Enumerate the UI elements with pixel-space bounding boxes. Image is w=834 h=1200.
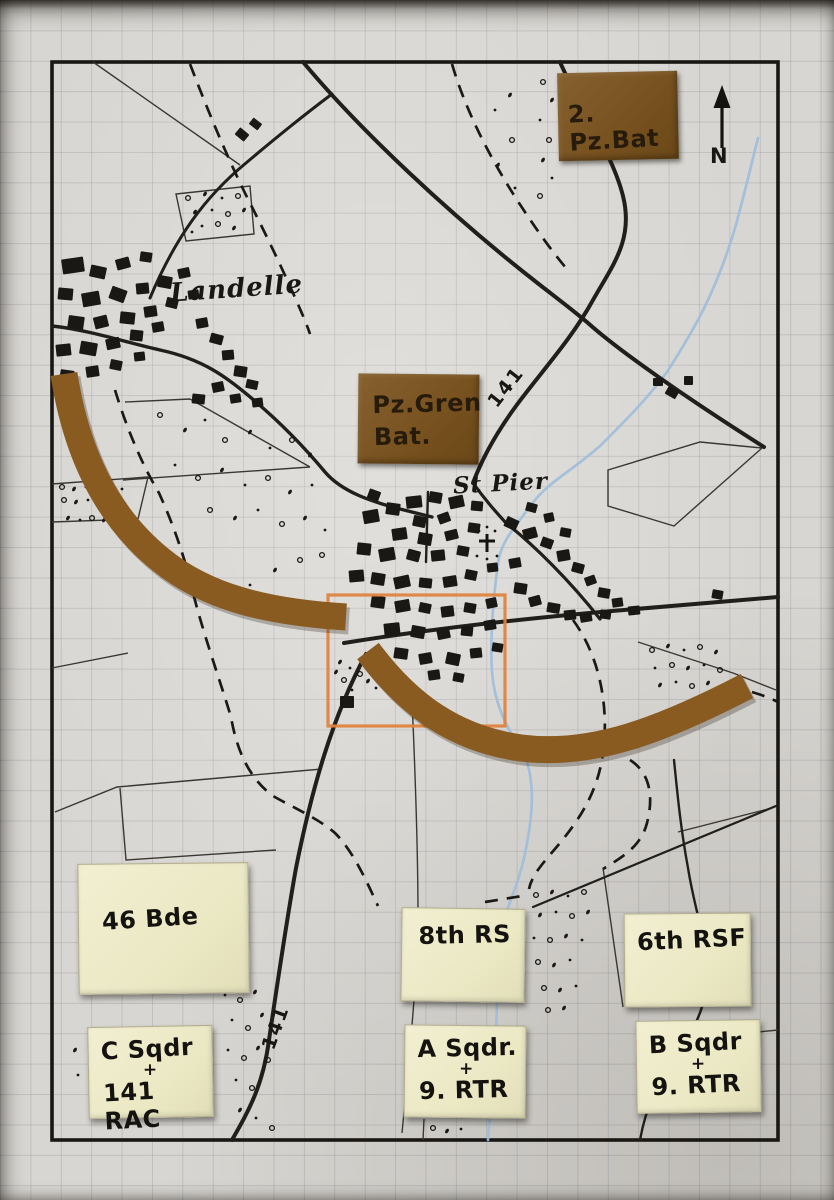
card-6th-rsf-label: 6th RSF	[624, 911, 751, 956]
card-b-sqdr-9-rtr: B Sqdr + 9. RTR	[635, 1019, 761, 1114]
squadron-cross-mark: +	[459, 1059, 473, 1079]
counter-2-pz-bat-label: 2. Pz.Bat	[556, 69, 680, 158]
church-symbol	[476, 526, 499, 561]
counter-pz-gren-bat: Pz.Gren Bat.	[358, 373, 480, 464]
counter-2-pz-bat: 2. Pz.Bat	[557, 71, 679, 161]
card-a-sqdr-9-rtr: A Sqdr. + 9. RTR	[404, 1024, 527, 1118]
card-c-sqdr-141-rac: C Sqdr + 141 RAC	[87, 1025, 214, 1119]
card-6th-rsf: 6th RSF	[624, 912, 752, 1007]
north-label: N	[710, 144, 728, 168]
town-label: St Pier	[452, 468, 548, 500]
card-46-bde-label: 46 Bde	[77, 859, 250, 937]
card-8th-rs: 8th RS	[400, 907, 525, 1003]
card-46-bde: 46 Bde	[77, 862, 249, 995]
front-line-arc-south	[368, 651, 747, 750]
card-8th-rs-label: 8th RS	[402, 908, 525, 951]
counter-pz-gren-line1: Pz.Gren	[358, 373, 480, 420]
hand-drawn-wargame-map-photo: Landelle St Pier 141 141 N 2. Pz.Bat Pz.…	[0, 0, 834, 1200]
north-arrow-icon	[714, 85, 731, 148]
squadron-cross-mark: +	[691, 1054, 706, 1074]
card-a-sqdr-line1: A Sqdr.	[405, 1025, 526, 1064]
counter-pz-gren-line2: Bat.	[357, 417, 479, 452]
front-line-arc-west	[64, 374, 346, 617]
squadron-cross-mark: +	[143, 1060, 158, 1080]
